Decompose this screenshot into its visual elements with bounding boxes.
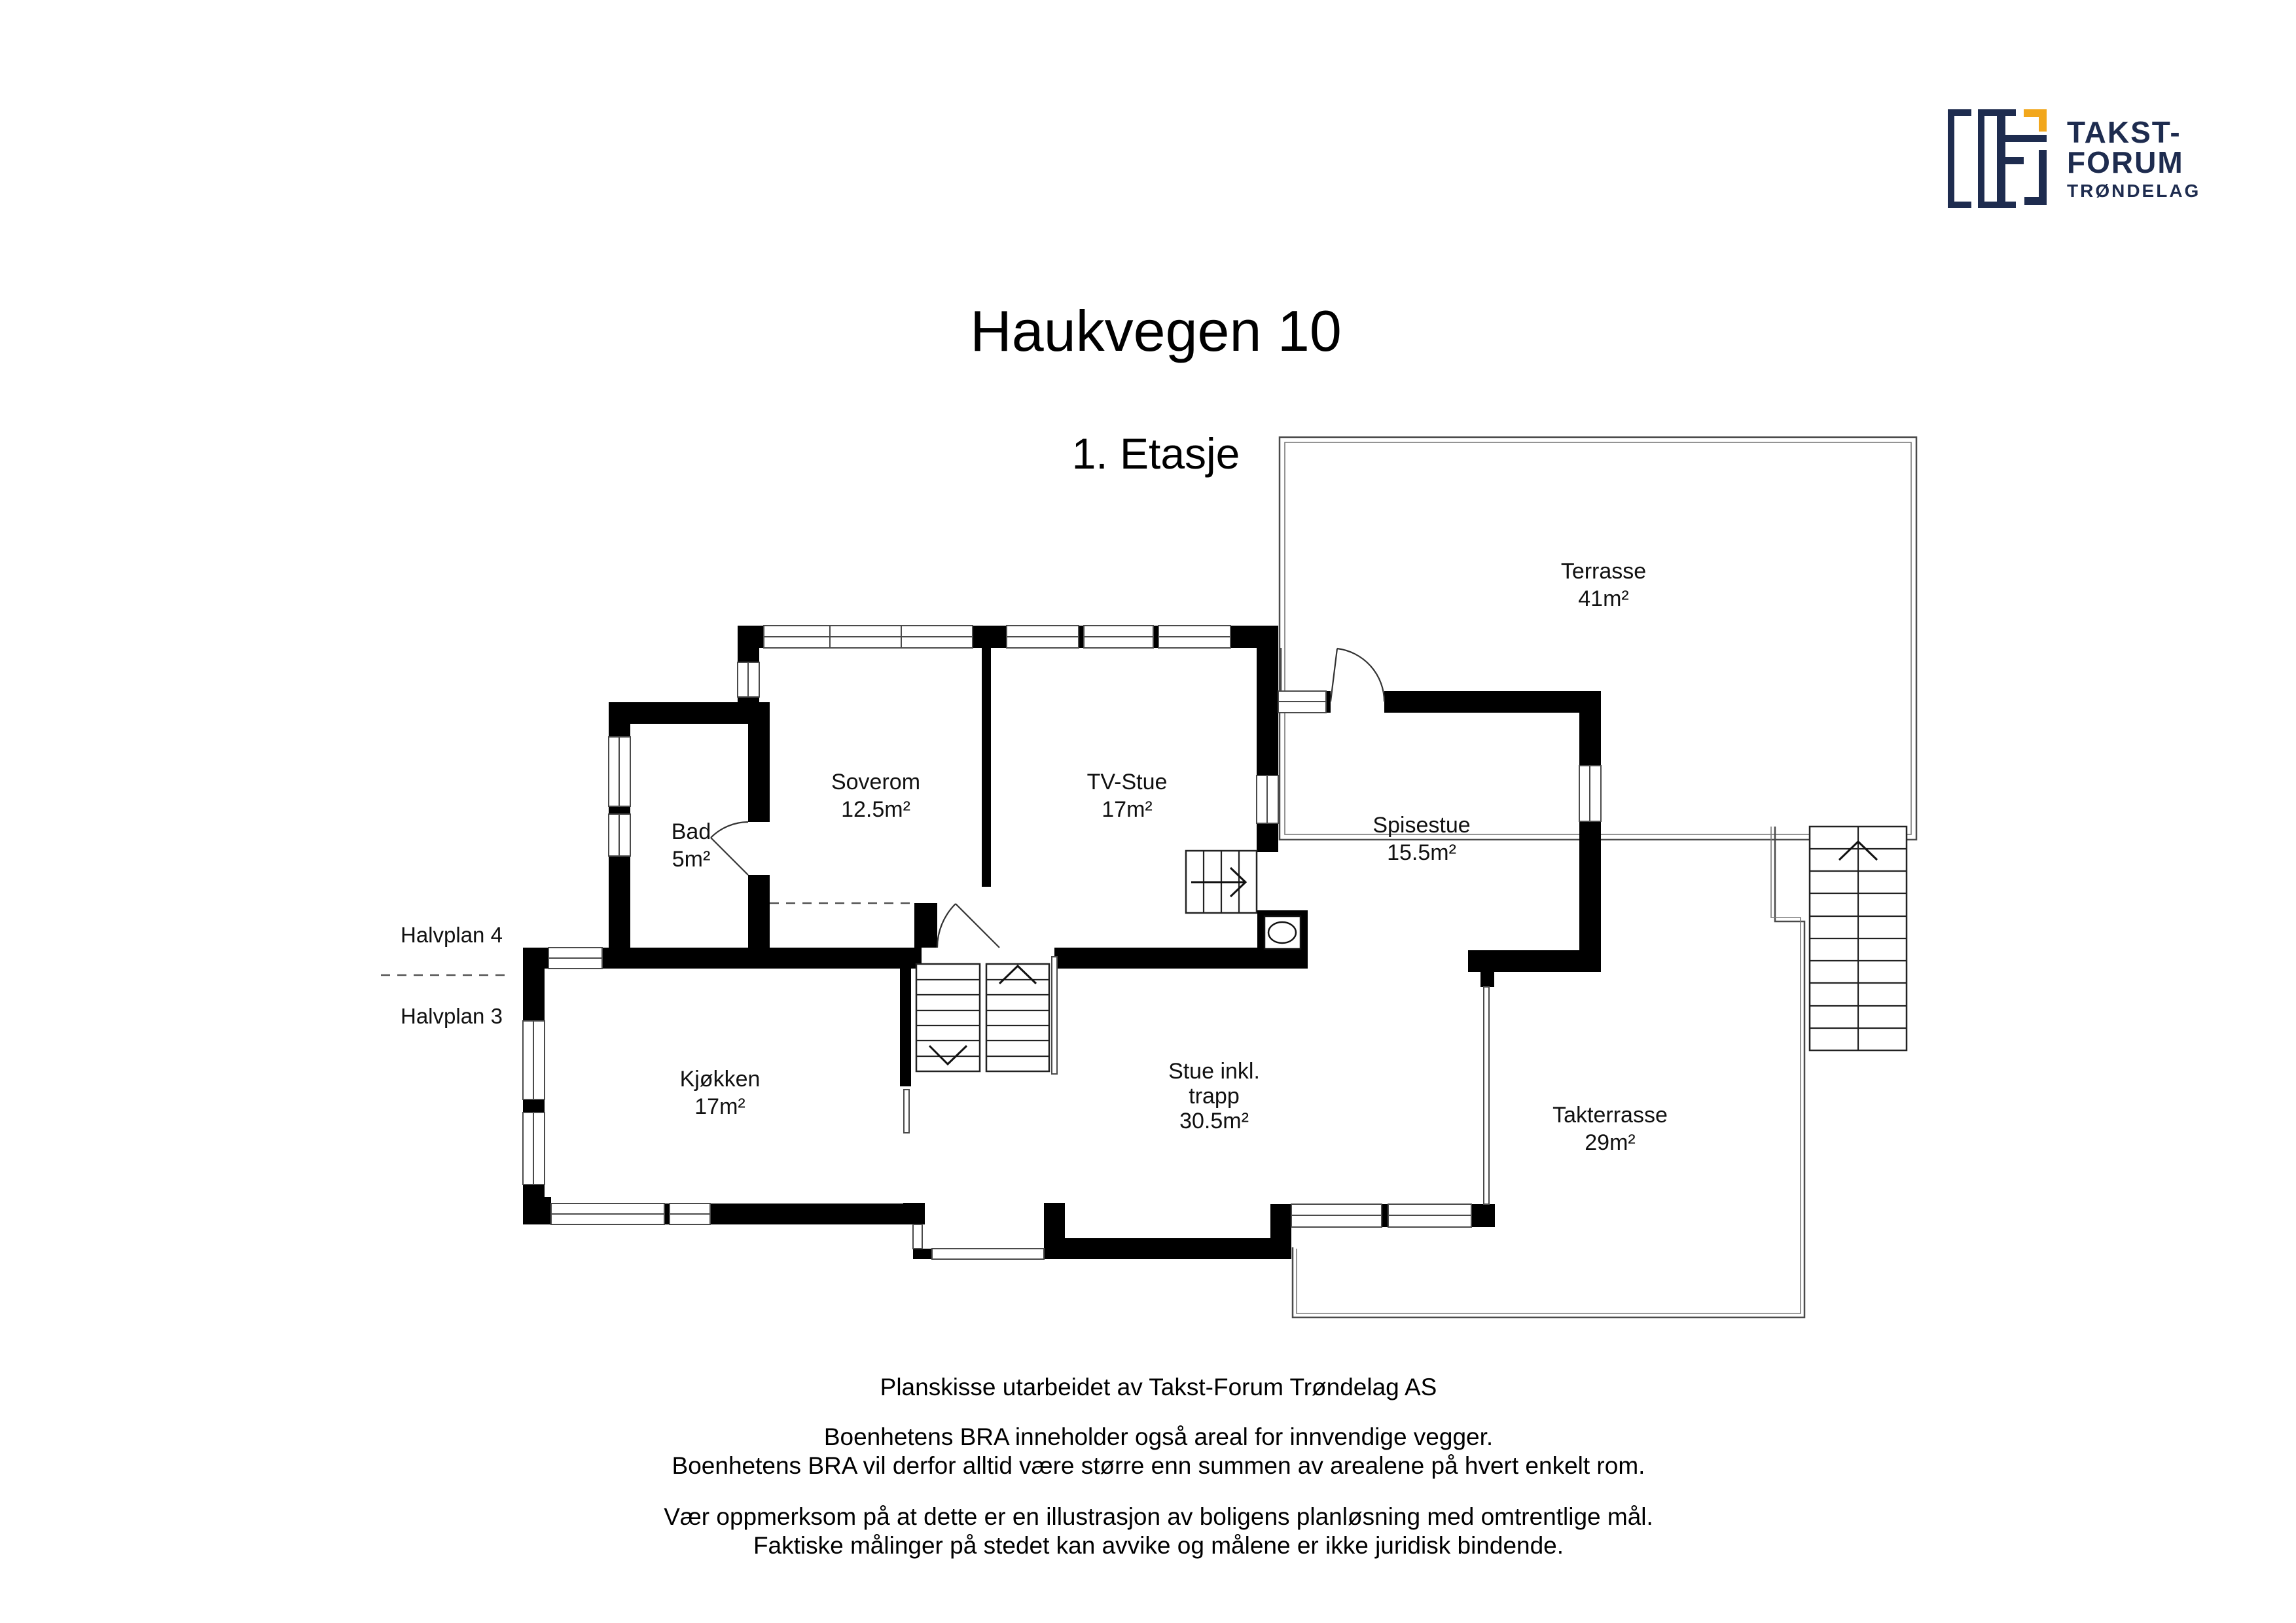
footer-line-3: Boenhetens BRA vil derfor alltid være st…	[672, 1452, 1645, 1479]
room-label-stue-line1: Stue inkl.	[1168, 1059, 1260, 1084]
logo-line-trondelag: TRØNDELAG	[2067, 181, 2200, 201]
window-bad-west-1	[609, 737, 630, 806]
room-area-kjokken: 17m²	[694, 1094, 745, 1119]
toilet-fixture	[1257, 910, 1308, 955]
window-soverom-west	[738, 662, 759, 697]
footer-disclaimer: Planskisse utarbeidet av Takst-Forum Trø…	[664, 1374, 1653, 1559]
window-spisestue-north	[1278, 691, 1326, 713]
window-tvstue-north-2	[1084, 626, 1153, 648]
walls	[523, 626, 1601, 1259]
window-spisestue-east	[1579, 766, 1601, 821]
takstforum-logo-icon	[1951, 113, 2047, 205]
floorplan-canvas: TAKST- FORUM TRØNDELAG Haukvegen 10 1. E…	[0, 0, 2296, 1623]
room-area-bad: 5m²	[672, 847, 711, 872]
window-tvstue-east	[1257, 776, 1278, 823]
half-level-stairs	[1186, 851, 1257, 913]
page-subtitle: 1. Etasje	[1072, 429, 1240, 478]
room-label-terrasse: Terrasse	[1561, 559, 1646, 584]
roof-terrace-outline	[1293, 827, 1804, 1317]
window-stue-south-2	[1388, 1204, 1471, 1227]
room-area-tvstue: 17m²	[1102, 797, 1152, 822]
room-label-spisestue: Spisestue	[1372, 813, 1470, 838]
door-soverom	[937, 904, 999, 948]
window-kitchen-west-1	[523, 1021, 545, 1099]
room-label-stue-line2: trapp	[1189, 1084, 1240, 1109]
takstforum-logo: TAKST- FORUM TRØNDELAG	[1951, 113, 2200, 205]
window-tvstue-north-3	[1158, 626, 1230, 648]
kitchen-open-door-leaf	[904, 1090, 909, 1133]
room-area-stue: 30.5m²	[1179, 1109, 1249, 1133]
page-title: Haukvegen 10	[970, 298, 1342, 363]
level-label-halvplan3: Halvplan 3	[401, 1004, 503, 1028]
level-label-halvplan4: Halvplan 4	[401, 923, 503, 947]
logo-line-forum: FORUM	[2067, 145, 2184, 179]
door-bad	[711, 822, 748, 875]
terrace-stairs	[1810, 827, 1907, 1050]
interior-stairs	[916, 957, 1057, 1074]
window-tvstue-north-1	[1007, 626, 1079, 648]
window-soverom-north	[764, 626, 973, 648]
window-kitchen-west-2	[523, 1113, 545, 1185]
door-spisestue-terrace	[1331, 649, 1384, 702]
glass-wall-stue-takterrasse	[1484, 987, 1489, 1204]
window-kitchen-south-2	[670, 1204, 710, 1224]
takstforum-logo-text: TAKST- FORUM TRØNDELAG	[2067, 115, 2200, 201]
footer-line-1: Planskisse utarbeidet av Takst-Forum Trø…	[880, 1374, 1437, 1400]
window-kitchen-north	[548, 948, 602, 969]
logo-line-takst: TAKST-	[2067, 115, 2181, 149]
footer-line-5: Faktiske målinger på stedet kan avvike o…	[753, 1532, 1564, 1559]
floorplan-page: TAKST- FORUM TRØNDELAG Haukvegen 10 1. E…	[0, 0, 2296, 1623]
footer-line-2: Boenhetens BRA inneholder også areal for…	[824, 1423, 1493, 1450]
room-label-tvstue: TV-Stue	[1087, 770, 1168, 794]
room-area-terrasse: 41m²	[1578, 586, 1628, 611]
room-label-takterrasse: Takterrasse	[1552, 1103, 1668, 1128]
window-kitchen-south-1	[551, 1204, 664, 1224]
footer-line-4: Vær oppmerksom på at dette er en illustr…	[664, 1503, 1653, 1530]
room-label-soverom: Soverom	[831, 770, 920, 794]
room-label-bad: Bad	[672, 819, 711, 844]
porch-railing	[932, 1249, 1044, 1259]
room-area-takterrasse: 29m²	[1585, 1130, 1635, 1155]
entry-sidelight	[913, 1224, 922, 1249]
window-bad-west-2	[609, 814, 630, 856]
window-stue-south-1	[1291, 1204, 1382, 1227]
room-area-spisestue: 15.5m²	[1387, 840, 1456, 865]
room-area-soverom: 12.5m²	[841, 797, 910, 822]
room-label-kjokken: Kjøkken	[680, 1067, 761, 1092]
